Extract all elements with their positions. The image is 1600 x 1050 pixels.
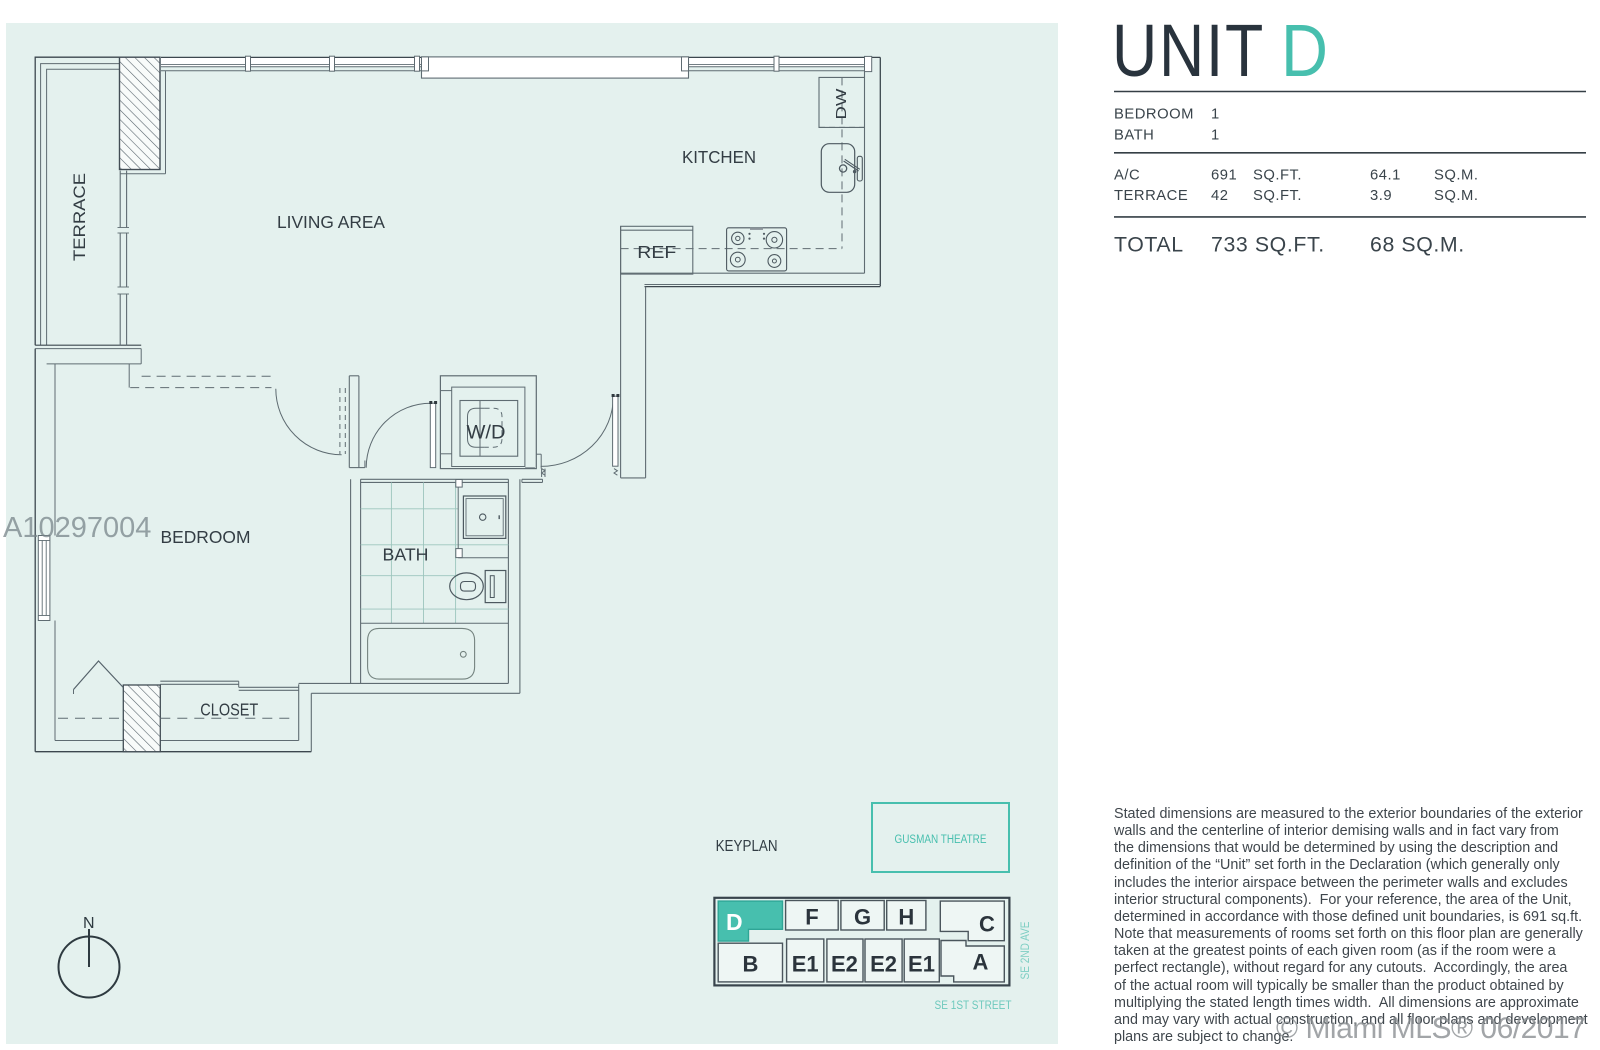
svg-text:E1: E1 bbox=[908, 952, 935, 977]
svg-text:KITCHEN: KITCHEN bbox=[682, 147, 756, 167]
svg-text:E1: E1 bbox=[792, 952, 819, 977]
svg-text:TERRACE: TERRACE bbox=[70, 173, 89, 261]
svg-text:64.1: 64.1 bbox=[1370, 168, 1401, 184]
svg-text:1: 1 bbox=[1211, 107, 1220, 123]
svg-text:A/C: A/C bbox=[1114, 168, 1140, 184]
svg-text:LIVING AREA: LIVING AREA bbox=[277, 212, 385, 232]
svg-text:KEYPLAN: KEYPLAN bbox=[716, 838, 778, 855]
svg-text:68 SQ.M.: 68 SQ.M. bbox=[1370, 233, 1465, 257]
svg-text:733 SQ.FT.: 733 SQ.FT. bbox=[1211, 233, 1325, 257]
svg-text:F: F bbox=[805, 905, 818, 930]
svg-text:E2: E2 bbox=[831, 952, 858, 977]
svg-text:SQ.FT.: SQ.FT. bbox=[1253, 168, 1302, 184]
svg-text:N: N bbox=[83, 915, 95, 932]
svg-text:BEDROOM: BEDROOM bbox=[1114, 107, 1194, 123]
svg-text:1: 1 bbox=[1211, 128, 1220, 144]
svg-text:D: D bbox=[726, 909, 743, 935]
svg-text:SQ.FT.: SQ.FT. bbox=[1253, 188, 1302, 204]
svg-text:W/D: W/D bbox=[467, 423, 506, 444]
svg-text:SQ.M.: SQ.M. bbox=[1434, 168, 1478, 184]
svg-text:B: B bbox=[743, 952, 759, 977]
svg-text:BATH: BATH bbox=[383, 545, 429, 565]
svg-text:UNIT: UNIT bbox=[1112, 9, 1265, 92]
svg-text:REF: REF bbox=[637, 242, 676, 262]
svg-text:SE 2ND AVE: SE 2ND AVE bbox=[1020, 921, 1032, 979]
svg-text:SQ.M.: SQ.M. bbox=[1434, 188, 1478, 204]
svg-text:42: 42 bbox=[1211, 188, 1228, 204]
svg-text:CLOSET: CLOSET bbox=[200, 700, 258, 720]
svg-text:TOTAL: TOTAL bbox=[1114, 233, 1184, 257]
svg-text:BEDROOM: BEDROOM bbox=[161, 527, 251, 547]
svg-text:SE 1ST STREET: SE 1ST STREET bbox=[935, 1000, 1012, 1012]
svg-text:DW: DW bbox=[833, 87, 850, 119]
svg-text:C: C bbox=[979, 912, 995, 937]
svg-text:A: A bbox=[973, 950, 989, 975]
svg-text:691: 691 bbox=[1211, 168, 1237, 184]
svg-text:H: H bbox=[898, 905, 914, 930]
svg-text:G: G bbox=[854, 905, 871, 930]
svg-text:3.9: 3.9 bbox=[1370, 188, 1392, 204]
svg-text:D: D bbox=[1281, 9, 1328, 92]
svg-text:GUSMAN THEATRE: GUSMAN THEATRE bbox=[895, 832, 987, 846]
svg-text:E2: E2 bbox=[870, 952, 897, 977]
svg-text:TERRACE: TERRACE bbox=[1114, 188, 1188, 204]
svg-text:BATH: BATH bbox=[1114, 128, 1154, 144]
